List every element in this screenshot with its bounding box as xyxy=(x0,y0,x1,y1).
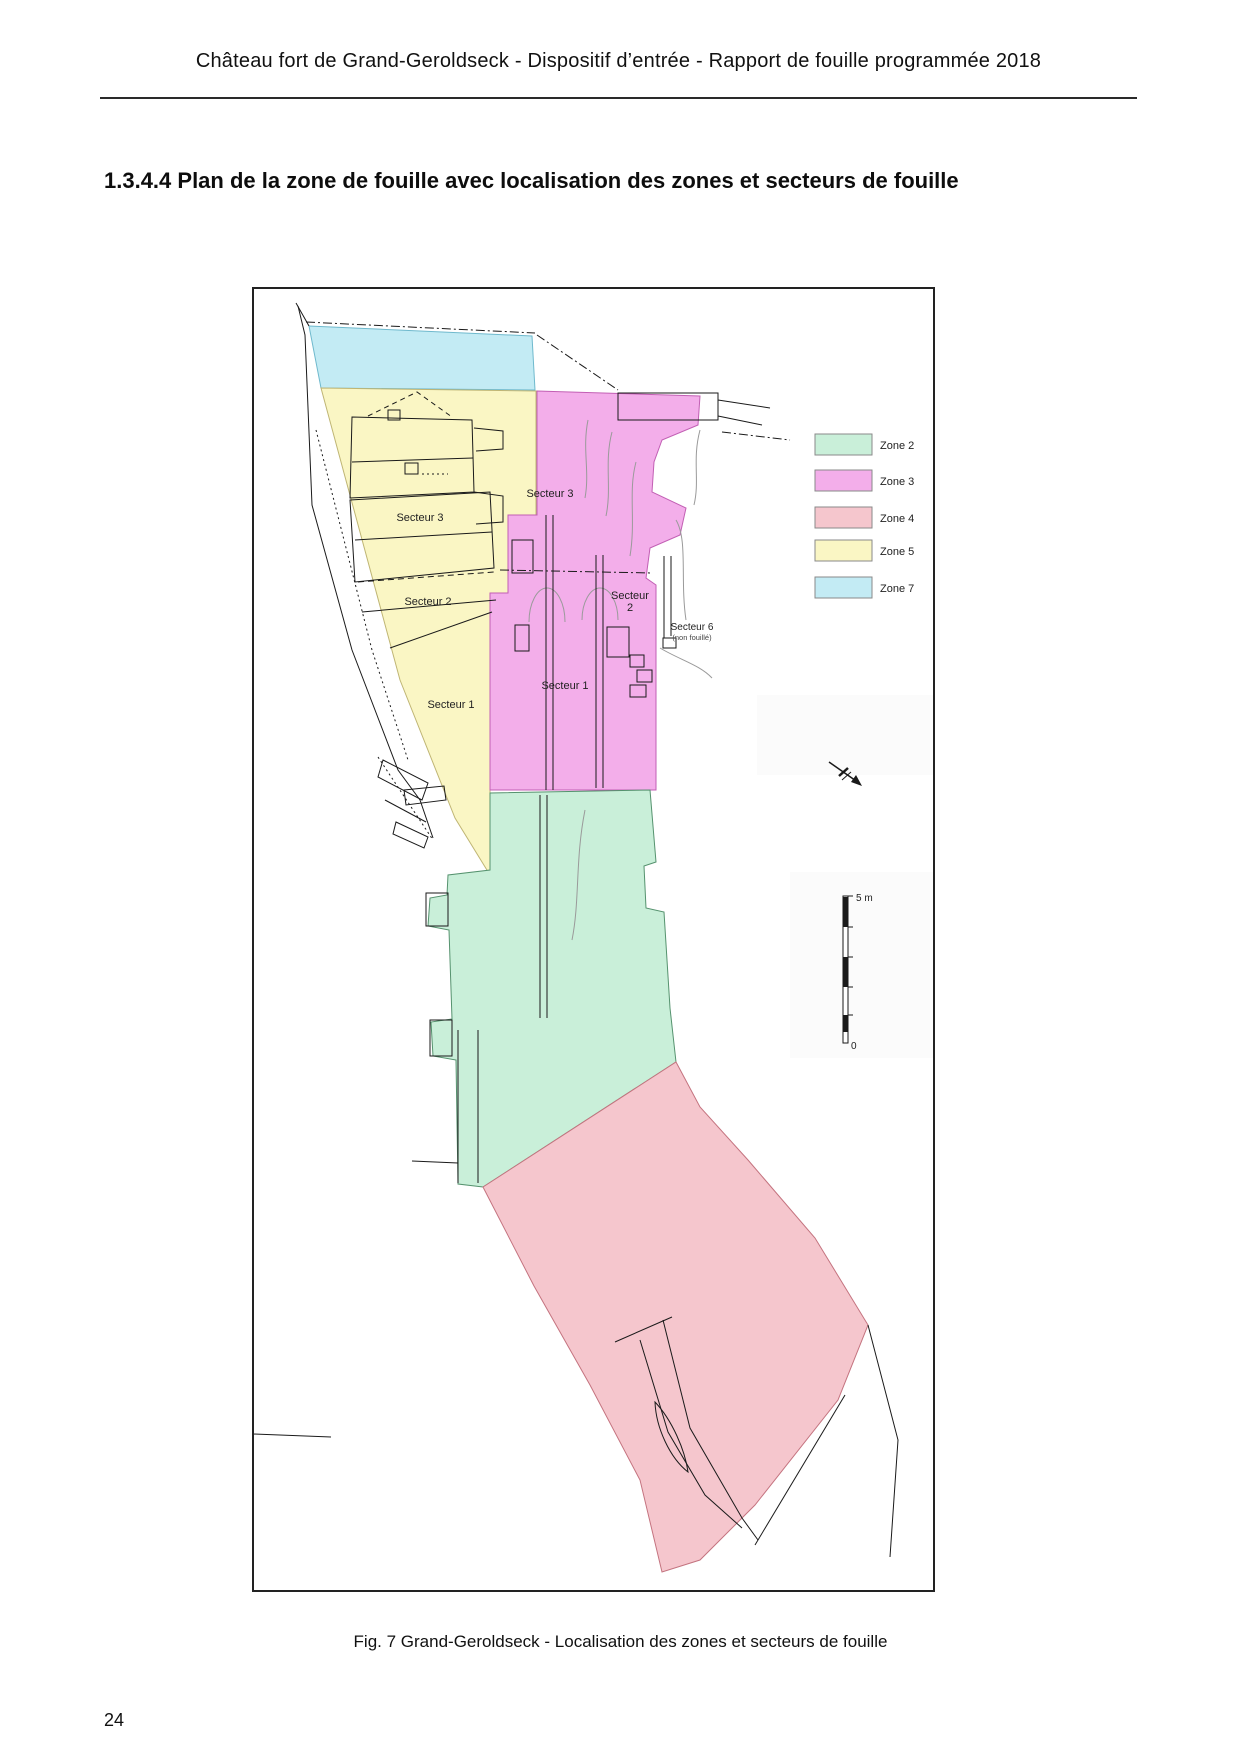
secteur6-label-line1: Secteur 6 xyxy=(671,622,714,633)
zone3-secteur2-label-line2: 2 xyxy=(627,602,633,614)
zone3-secteur3-label: Secteur 3 xyxy=(526,488,573,500)
report-page: Château fort de Grand-Geroldseck - Dispo… xyxy=(0,0,1241,1755)
scale-bar-top-label: 5 m xyxy=(856,893,873,904)
legend-item-zone2: Zone 2 xyxy=(815,434,914,455)
zone5-secteur1-label: Secteur 1 xyxy=(427,699,474,711)
excavation-plan-figure: Secteur 3 Secteur 2 Secteur 1 Secteur 3 … xyxy=(252,287,935,1592)
legend-swatch-zone3 xyxy=(815,470,872,491)
page-number: 24 xyxy=(104,1710,124,1731)
legend-swatch-zone7 xyxy=(815,577,872,598)
zone5-secteur3-label: Secteur 3 xyxy=(396,512,443,524)
zone5-secteur2-label: Secteur 2 xyxy=(404,596,451,608)
legend-label-zone5: Zone 5 xyxy=(880,546,914,558)
page-header-title: Château fort de Grand-Geroldseck - Dispo… xyxy=(100,50,1137,73)
legend-item-zone7: Zone 7 xyxy=(815,577,914,598)
header-rule xyxy=(100,97,1137,99)
zone7-area xyxy=(309,326,535,390)
legend-item-zone5: Zone 5 xyxy=(815,540,914,561)
legend-item-zone3: Zone 3 xyxy=(815,470,914,491)
legend-label-zone3: Zone 3 xyxy=(880,476,914,488)
excavation-plan: Secteur 3 Secteur 2 Secteur 1 Secteur 3 … xyxy=(252,287,935,1592)
legend-item-zone4: Zone 4 xyxy=(815,507,914,528)
zone3-secteur1-label: Secteur 1 xyxy=(541,680,588,692)
zone3-secteur2-label-line1: Secteur xyxy=(611,590,649,602)
legend-label-zone7: Zone 7 xyxy=(880,583,914,595)
zone-areas xyxy=(309,326,868,1572)
legend-swatch-zone5 xyxy=(815,540,872,561)
scale-bar-zero-label: 0 xyxy=(851,1041,857,1052)
legend: Zone 2 Zone 3 Zone 4 Zone 5 Zone 7 xyxy=(815,434,914,598)
section-heading: 1.3.4.4 Plan de la zone de fouille avec … xyxy=(104,168,1144,194)
figure-caption: Fig. 7 Grand-Geroldseck - Localisation d… xyxy=(0,1632,1241,1652)
secteur6-label-line2: (non fouillé) xyxy=(672,633,712,642)
legend-label-zone2: Zone 2 xyxy=(880,440,914,452)
legend-label-zone4: Zone 4 xyxy=(880,513,914,525)
legend-swatch-zone4 xyxy=(815,507,872,528)
legend-swatch-zone2 xyxy=(815,434,872,455)
